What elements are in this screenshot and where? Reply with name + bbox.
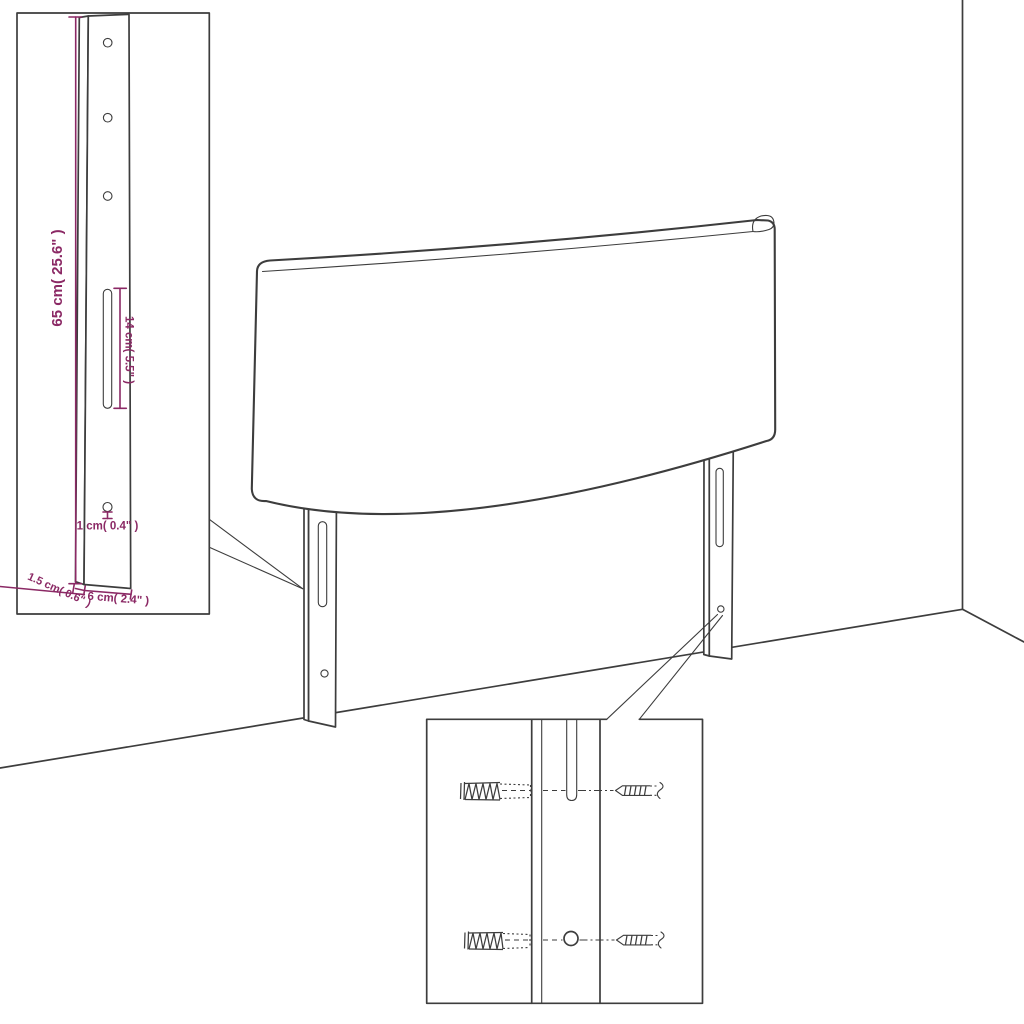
assembly-diagram-page: 65 cm( 25.6" ) 14 cm( 5.5" ) 1 cm( 0.4" … <box>0 0 1024 1024</box>
dimension-hole-label: 1 cm( 0.4" ) <box>77 521 139 533</box>
left-leg-hole <box>321 670 328 677</box>
left-leg-slot <box>318 522 326 607</box>
dimension-height-label: 65 cm( 25.6" ) <box>49 229 66 326</box>
hardware-inset <box>427 719 703 1003</box>
left-leg <box>304 488 337 727</box>
detail-callout-wedge <box>209 519 302 588</box>
dimension-slot-label: 14 cm( 5.5" ) <box>123 316 135 384</box>
headboard-panel <box>252 220 775 514</box>
hardware-callout-left <box>607 615 718 720</box>
assembly-diagram: 65 cm( 25.6" ) 14 cm( 5.5" ) 1 cm( 0.4" … <box>0 0 1024 1024</box>
headboard <box>252 215 775 514</box>
bracket-drawing <box>76 14 131 588</box>
right-leg-hole <box>718 606 724 612</box>
right-leg <box>704 445 734 659</box>
hardware-callout-right <box>639 616 722 720</box>
detail-inset: 65 cm( 25.6" ) 14 cm( 5.5" ) 1 cm( 0.4" … <box>0 13 209 614</box>
hardware-inset-box <box>427 719 703 1003</box>
floor-line-right <box>963 609 1024 642</box>
right-leg-slot <box>716 468 723 546</box>
